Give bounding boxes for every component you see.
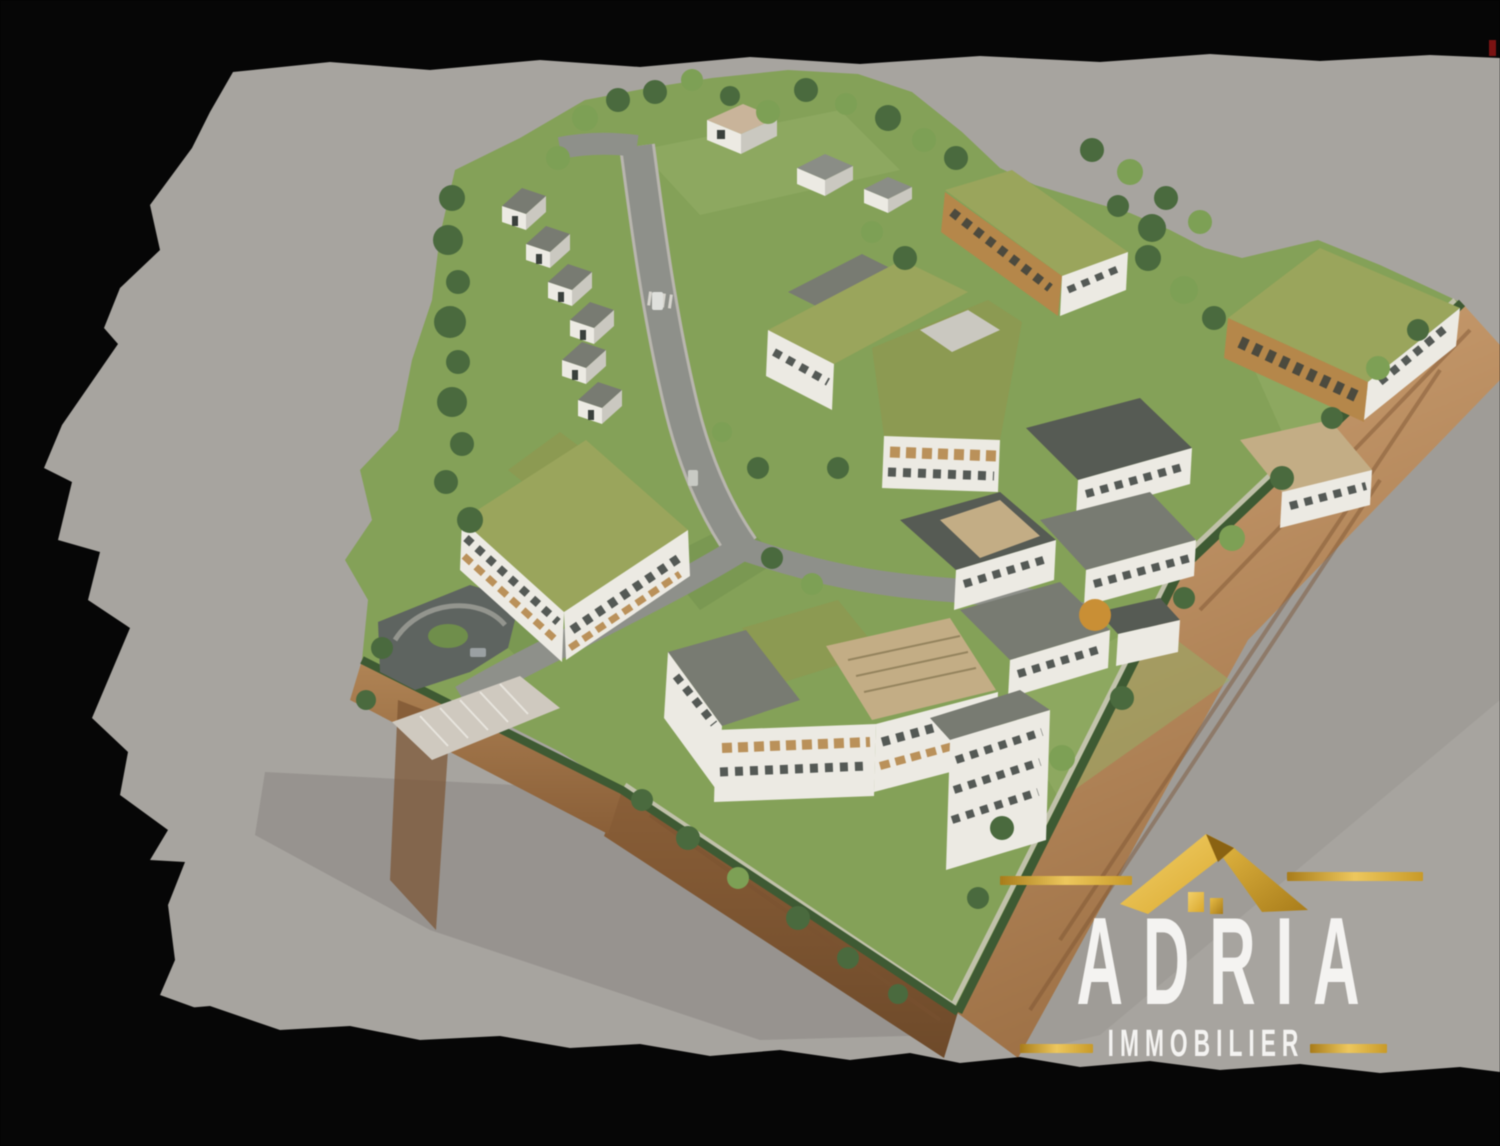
tree: [835, 93, 857, 115]
tree: [1202, 306, 1226, 330]
tree: [1135, 245, 1161, 271]
tree: [1154, 186, 1178, 210]
driveway-island: [428, 624, 468, 648]
tree: [888, 984, 908, 1004]
door: [536, 254, 542, 264]
window: [717, 130, 725, 139]
tree: [1080, 138, 1104, 162]
tree: [794, 78, 818, 102]
tree: [1170, 276, 1198, 304]
tree: [439, 185, 465, 211]
car: [470, 648, 486, 657]
tree: [875, 105, 901, 131]
tree: [437, 387, 467, 417]
tagline-row: IMMOBILIER: [1000, 1028, 1475, 1068]
tree: [727, 867, 749, 889]
tree: [761, 547, 783, 569]
tree: [546, 146, 570, 170]
tree: [356, 690, 376, 710]
tagline-bar-right: [1310, 1044, 1387, 1053]
rendering-canvas: ADRIA IMMOBILIER: [0, 0, 1500, 1146]
car: [652, 292, 663, 310]
tree: [631, 789, 653, 811]
tree: [786, 906, 810, 930]
tree: [572, 105, 598, 131]
logo-bar-left: [1000, 876, 1132, 885]
tree: [681, 69, 703, 91]
tree: [433, 225, 463, 255]
red-speck: [1489, 40, 1496, 56]
roof-icon: [1000, 818, 1475, 914]
car: [688, 470, 698, 486]
adria-logo: ADRIA IMMOBILIER: [1000, 818, 1475, 1080]
door: [558, 292, 564, 302]
door: [572, 370, 578, 380]
door: [512, 216, 518, 226]
tree: [1219, 525, 1245, 551]
autumn-tree: [1079, 599, 1111, 631]
tree: [801, 573, 823, 595]
tagline-bar-left: [1020, 1044, 1093, 1053]
tree: [371, 637, 393, 659]
tree: [446, 270, 470, 294]
tree: [676, 826, 700, 850]
door: [580, 330, 586, 340]
tree: [1049, 745, 1075, 771]
tree: [756, 100, 780, 124]
access-road-top: [560, 144, 637, 148]
tree: [1138, 214, 1166, 242]
tree: [434, 470, 458, 494]
tagline: IMMOBILIER: [1108, 1028, 1305, 1064]
logo-bar-right: [1287, 872, 1423, 881]
tree: [643, 80, 667, 104]
chimney-block: [1210, 898, 1223, 914]
tree: [837, 947, 859, 969]
tree: [1117, 159, 1143, 185]
tree: [434, 306, 466, 338]
tree: [457, 507, 483, 533]
tree: [861, 221, 883, 243]
facade-south: [882, 436, 1000, 492]
tree: [912, 128, 936, 152]
tree: [1321, 407, 1343, 429]
tree: [1270, 466, 1294, 490]
tree: [712, 422, 732, 442]
tree: [1173, 587, 1195, 609]
tree: [1188, 210, 1212, 234]
brand-wordmark: ADRIA: [1000, 914, 1475, 1014]
tree: [450, 432, 474, 456]
facade-south: [714, 724, 876, 802]
tree: [944, 146, 968, 170]
tree: [893, 246, 917, 270]
tree: [1366, 356, 1390, 380]
tree: [720, 86, 740, 106]
tree: [446, 350, 470, 374]
chimney-block: [1188, 892, 1204, 912]
brand-name: ADRIA: [1077, 914, 1380, 1014]
tree: [967, 887, 989, 909]
tree: [1110, 686, 1134, 710]
tree: [606, 88, 630, 112]
tree: [747, 457, 769, 479]
tree: [1107, 195, 1129, 217]
tree: [827, 457, 849, 479]
tree: [1407, 319, 1429, 341]
door: [588, 410, 594, 420]
